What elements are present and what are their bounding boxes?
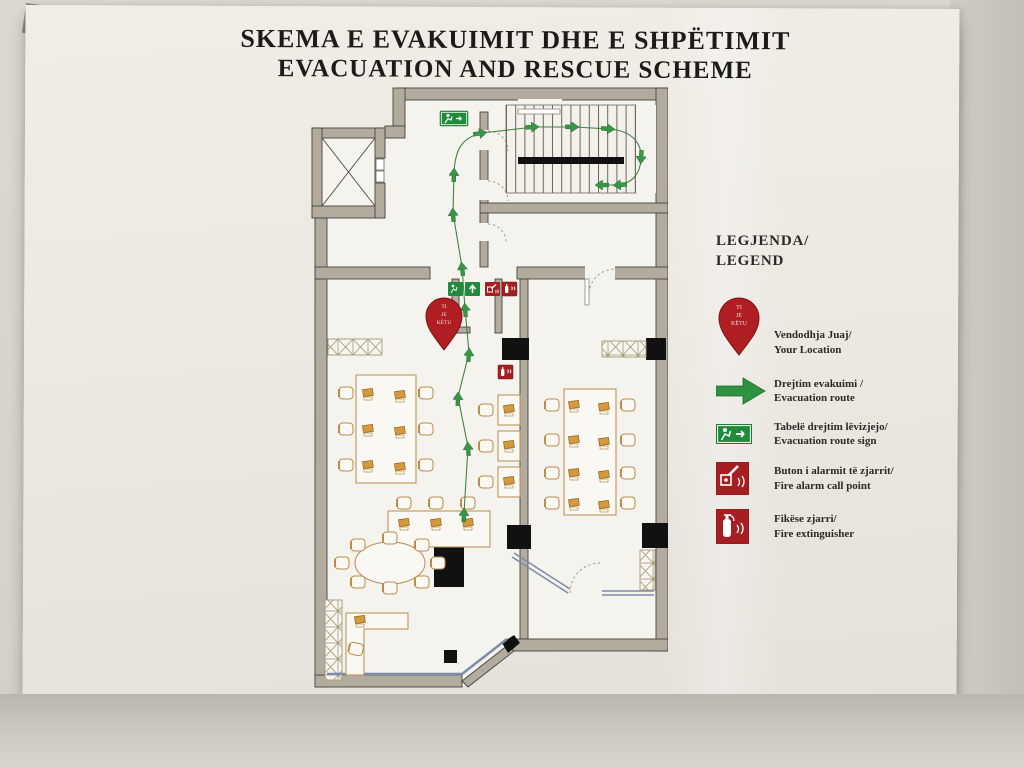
stair-divider: [518, 157, 624, 164]
title-albanian: SKEMA E EVAKUIMIT DHE E SHPËTIMIT: [205, 24, 825, 57]
fire-extinguisher-sign-icon: [502, 282, 517, 296]
exit-sign-icon: [448, 282, 463, 296]
fire-alarm-icon: [716, 462, 774, 495]
legend-item-route-sign: Tabelë drejtim lëvizjejo/ Evacuation rou…: [716, 420, 926, 449]
floor-plan: TI JE KËTU: [278, 83, 668, 703]
exit-sign-icon: [716, 424, 774, 444]
up-arrow-sign-icon: [465, 282, 480, 296]
svg-text:KËTU: KËTU: [731, 320, 748, 327]
title-english: EVACUATION AND RESCUE SCHEME: [205, 54, 825, 87]
svg-text:JE: JE: [441, 312, 447, 318]
legend-heading: LEGJENDA/ LEGEND: [716, 232, 926, 271]
fire-extinguisher-icon: [716, 509, 774, 544]
fire-extinguisher-sign-icon: [498, 365, 513, 379]
door-leaf: [518, 109, 560, 114]
legend-label: Fikëse zjarri/ Fire extinguisher: [774, 512, 854, 541]
poster-title: SKEMA E EVAKUIMIT DHE E SHPËTIMIT EVACUA…: [205, 24, 825, 87]
legend-label: Vendodhja Juaj/ Your Location: [774, 328, 852, 357]
legend-item-evacuation-route: Drejtim evakuimi / Evacuation route: [716, 377, 926, 406]
legend-label: Drejtim evakuimi / Evacuation route: [774, 377, 863, 406]
legend-label: Tabelë drejtim lëvizjejo/ Evacuation rou…: [774, 420, 888, 449]
legend-label: Buton i alarmit të zjarrit/ Fire alarm c…: [774, 464, 894, 493]
svg-text:TI: TI: [441, 304, 446, 310]
door-leaf: [585, 279, 589, 305]
legend-item-your-location: TI JE KËTU Vendodhja Juaj/ Your Location: [716, 293, 926, 357]
wall-background-right: [950, 0, 1024, 768]
legend-item-fire-alarm: Buton i alarmit të zjarrit/ Fire alarm c…: [716, 462, 926, 495]
evacuation-arrow-icon: [716, 377, 774, 405]
svg-text:KËTU: KËTU: [437, 319, 452, 326]
exit-sign-icon: [440, 111, 468, 126]
photo-of-evacuation-scheme: SKEMA E EVAKUIMIT DHE E SHPËTIMIT EVACUA…: [0, 0, 1024, 768]
fire-alarm-sign-icon: [485, 282, 500, 296]
wall-background-bottom: [0, 694, 1024, 768]
legend: LEGJENDA/ LEGEND TI JE KËTU Vendodhja Ju…: [716, 232, 926, 544]
elevator: [322, 138, 384, 206]
legend-item-fire-extinguisher: Fikëse zjarri/ Fire extinguisher: [716, 509, 926, 544]
svg-text:TI: TI: [736, 305, 742, 311]
stairwell: [506, 105, 656, 193]
svg-text:JE: JE: [736, 313, 742, 319]
location-pin-icon: TI JE KËTU: [716, 293, 774, 357]
